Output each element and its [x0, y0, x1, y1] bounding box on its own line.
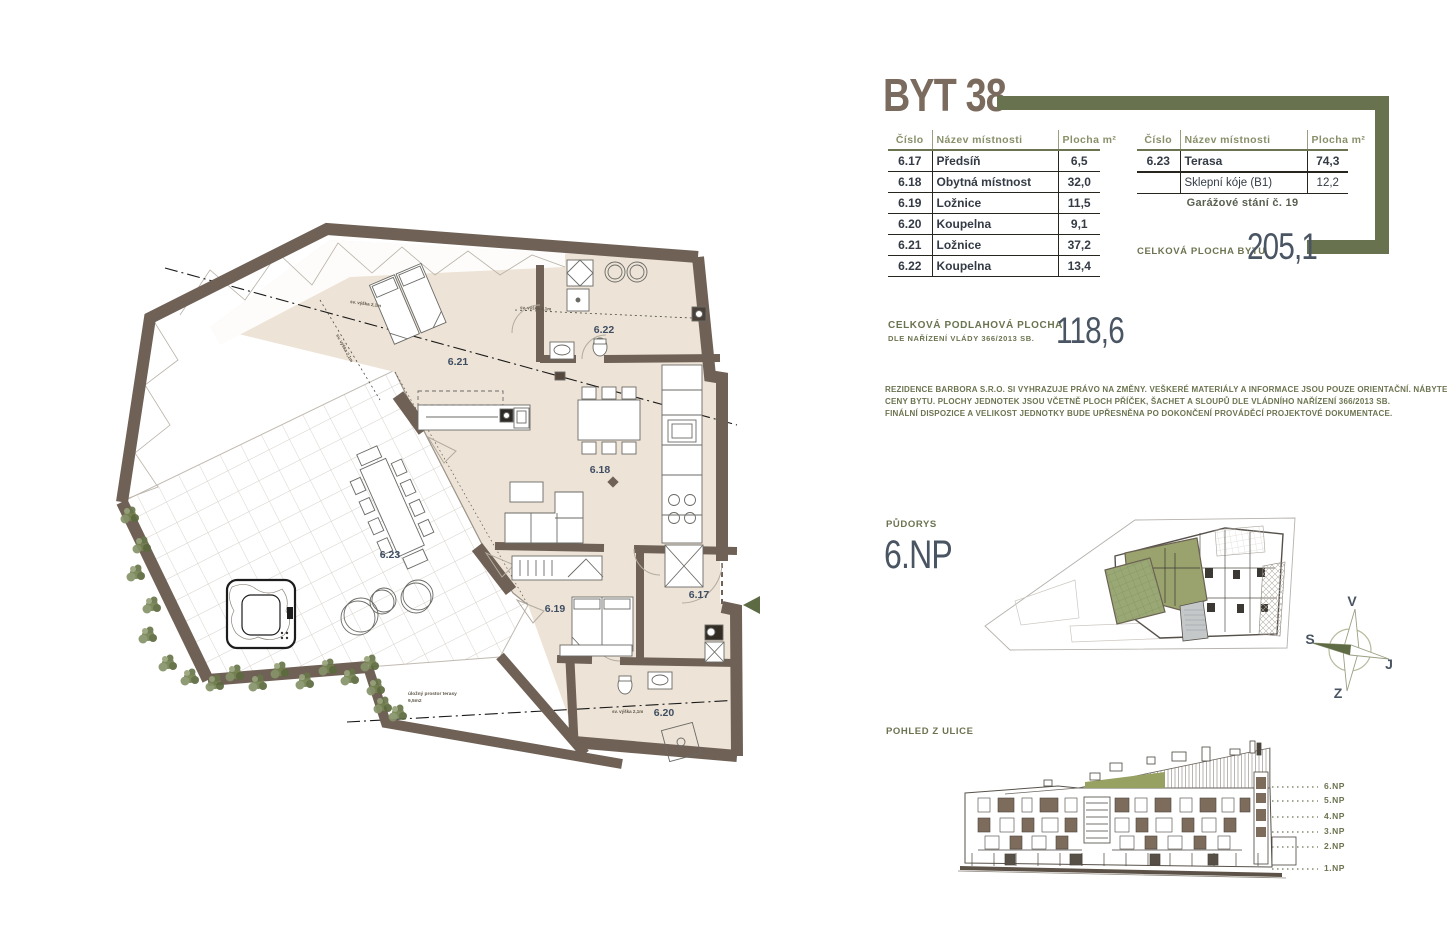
- floor-area-value: 118,6: [1056, 310, 1124, 352]
- col-header-number: Číslo: [1137, 130, 1180, 150]
- table-row: 6.23Terasa74,3: [1137, 150, 1348, 172]
- floor-label-4np: 4.NP: [1324, 811, 1345, 821]
- table-row: 6.19Ložnice11,5: [888, 193, 1100, 214]
- disclaimer-line: REZIDENCE BARBORA S.R.O. SI VYHRAZUJE PR…: [885, 384, 1447, 396]
- room-label-619: 6.19: [545, 603, 566, 615]
- room-table-left: Číslo Název místnosti Plocha m² 6.17Před…: [888, 130, 1100, 277]
- garage-note: Garážové stání č. 19: [1137, 197, 1348, 209]
- title-accent-bar: [997, 96, 1389, 110]
- entrance-arrow-icon: [743, 596, 760, 614]
- brochure-page: úložný prostor terasy 9,5m2 sv. výška 2,…: [0, 0, 1447, 939]
- table-row: 6.21Ložnice37,2: [888, 235, 1100, 256]
- compass-east: V: [1347, 593, 1357, 609]
- table-row: Sklepní kóje (B1)12,2: [1137, 172, 1348, 194]
- floor-label-5np: 5.NP: [1324, 795, 1345, 805]
- plan-section-label: PŮDORYS: [886, 519, 937, 530]
- compass-rose-icon: V S J Z: [1303, 593, 1413, 703]
- room-label-620: 6.20: [654, 707, 675, 719]
- col-header-name: Název místnosti: [932, 130, 1058, 150]
- table-row: 6.17Předsíň6,5: [888, 150, 1100, 172]
- floor-label-2np: 2.NP: [1324, 841, 1345, 851]
- floor-label-6np: 6.NP: [1324, 781, 1345, 791]
- ground-line: [960, 866, 1282, 877]
- disclaimer-text: REZIDENCE BARBORA S.R.O. SI VYHRAZUJE PR…: [885, 384, 1447, 420]
- table-row: 6.18Obytná místnost32,0: [888, 172, 1100, 193]
- height-note-4: sv. výška 2,1m: [612, 709, 643, 714]
- plan-floor-label: 6.NP: [884, 533, 952, 578]
- room-table-right: Číslo Název místnosti Plocha m² 6.23Tera…: [1137, 130, 1348, 194]
- table-row: 6.20Koupelna9,1: [888, 214, 1100, 235]
- roof-terrace-top: [1215, 526, 1265, 556]
- room-label-622: 6.22: [594, 324, 615, 336]
- col-header-area: Plocha m²: [1058, 130, 1100, 150]
- room-label-623: 6.23: [380, 549, 401, 561]
- floor-label-1np: 1.NP: [1324, 863, 1345, 873]
- floor-label-3np: 3.NP: [1324, 826, 1345, 836]
- street-elevation-drawing: [950, 735, 1350, 915]
- room-label-617: 6.17: [689, 589, 710, 601]
- col-header-area: Plocha m²: [1307, 130, 1348, 150]
- accent-bar-right: [1375, 96, 1389, 254]
- table-row: 6.22Koupelna13,4: [888, 256, 1100, 277]
- stair-core: [1180, 601, 1208, 641]
- compass-north: S: [1305, 631, 1314, 647]
- compass-south: J: [1385, 656, 1393, 672]
- page-title: BYT 38: [883, 68, 1006, 122]
- floor-area-sublabel: DLE NAŘÍZENÍ VLÁDY 366/2013 SB.: [888, 334, 1034, 343]
- disclaimer-line: FINÁLNÍ DISPOZICE A VELIKOST JEDNOTKY BU…: [885, 408, 1447, 420]
- annex: [1272, 837, 1296, 865]
- col-header-name: Název místnosti: [1180, 130, 1307, 150]
- total-area-value: 205,1: [1247, 226, 1317, 268]
- louver-block: [1084, 797, 1110, 843]
- col-header-number: Číslo: [888, 130, 932, 150]
- room-label-618: 6.18: [590, 464, 611, 476]
- disclaimer-line: CENY BYTU. PLOCHY JEDNOTEK JSOU VČETNĚ P…: [885, 396, 1447, 408]
- site-key-plan: [975, 508, 1315, 668]
- accent-bar-bottom: [1307, 240, 1389, 254]
- floor-area-label: CELKOVÁ PODLAHOVÁ PLOCHA: [888, 320, 1063, 331]
- floor-plan-drawing: úložný prostor terasy 9,5m2 sv. výška 2,…: [20, 215, 780, 895]
- room-label-621: 6.21: [448, 356, 469, 368]
- storage-note-line1: úložný prostor terasy: [408, 691, 457, 697]
- compass-west: Z: [1334, 685, 1343, 701]
- storage-note-line2: 9,5m2: [408, 698, 422, 704]
